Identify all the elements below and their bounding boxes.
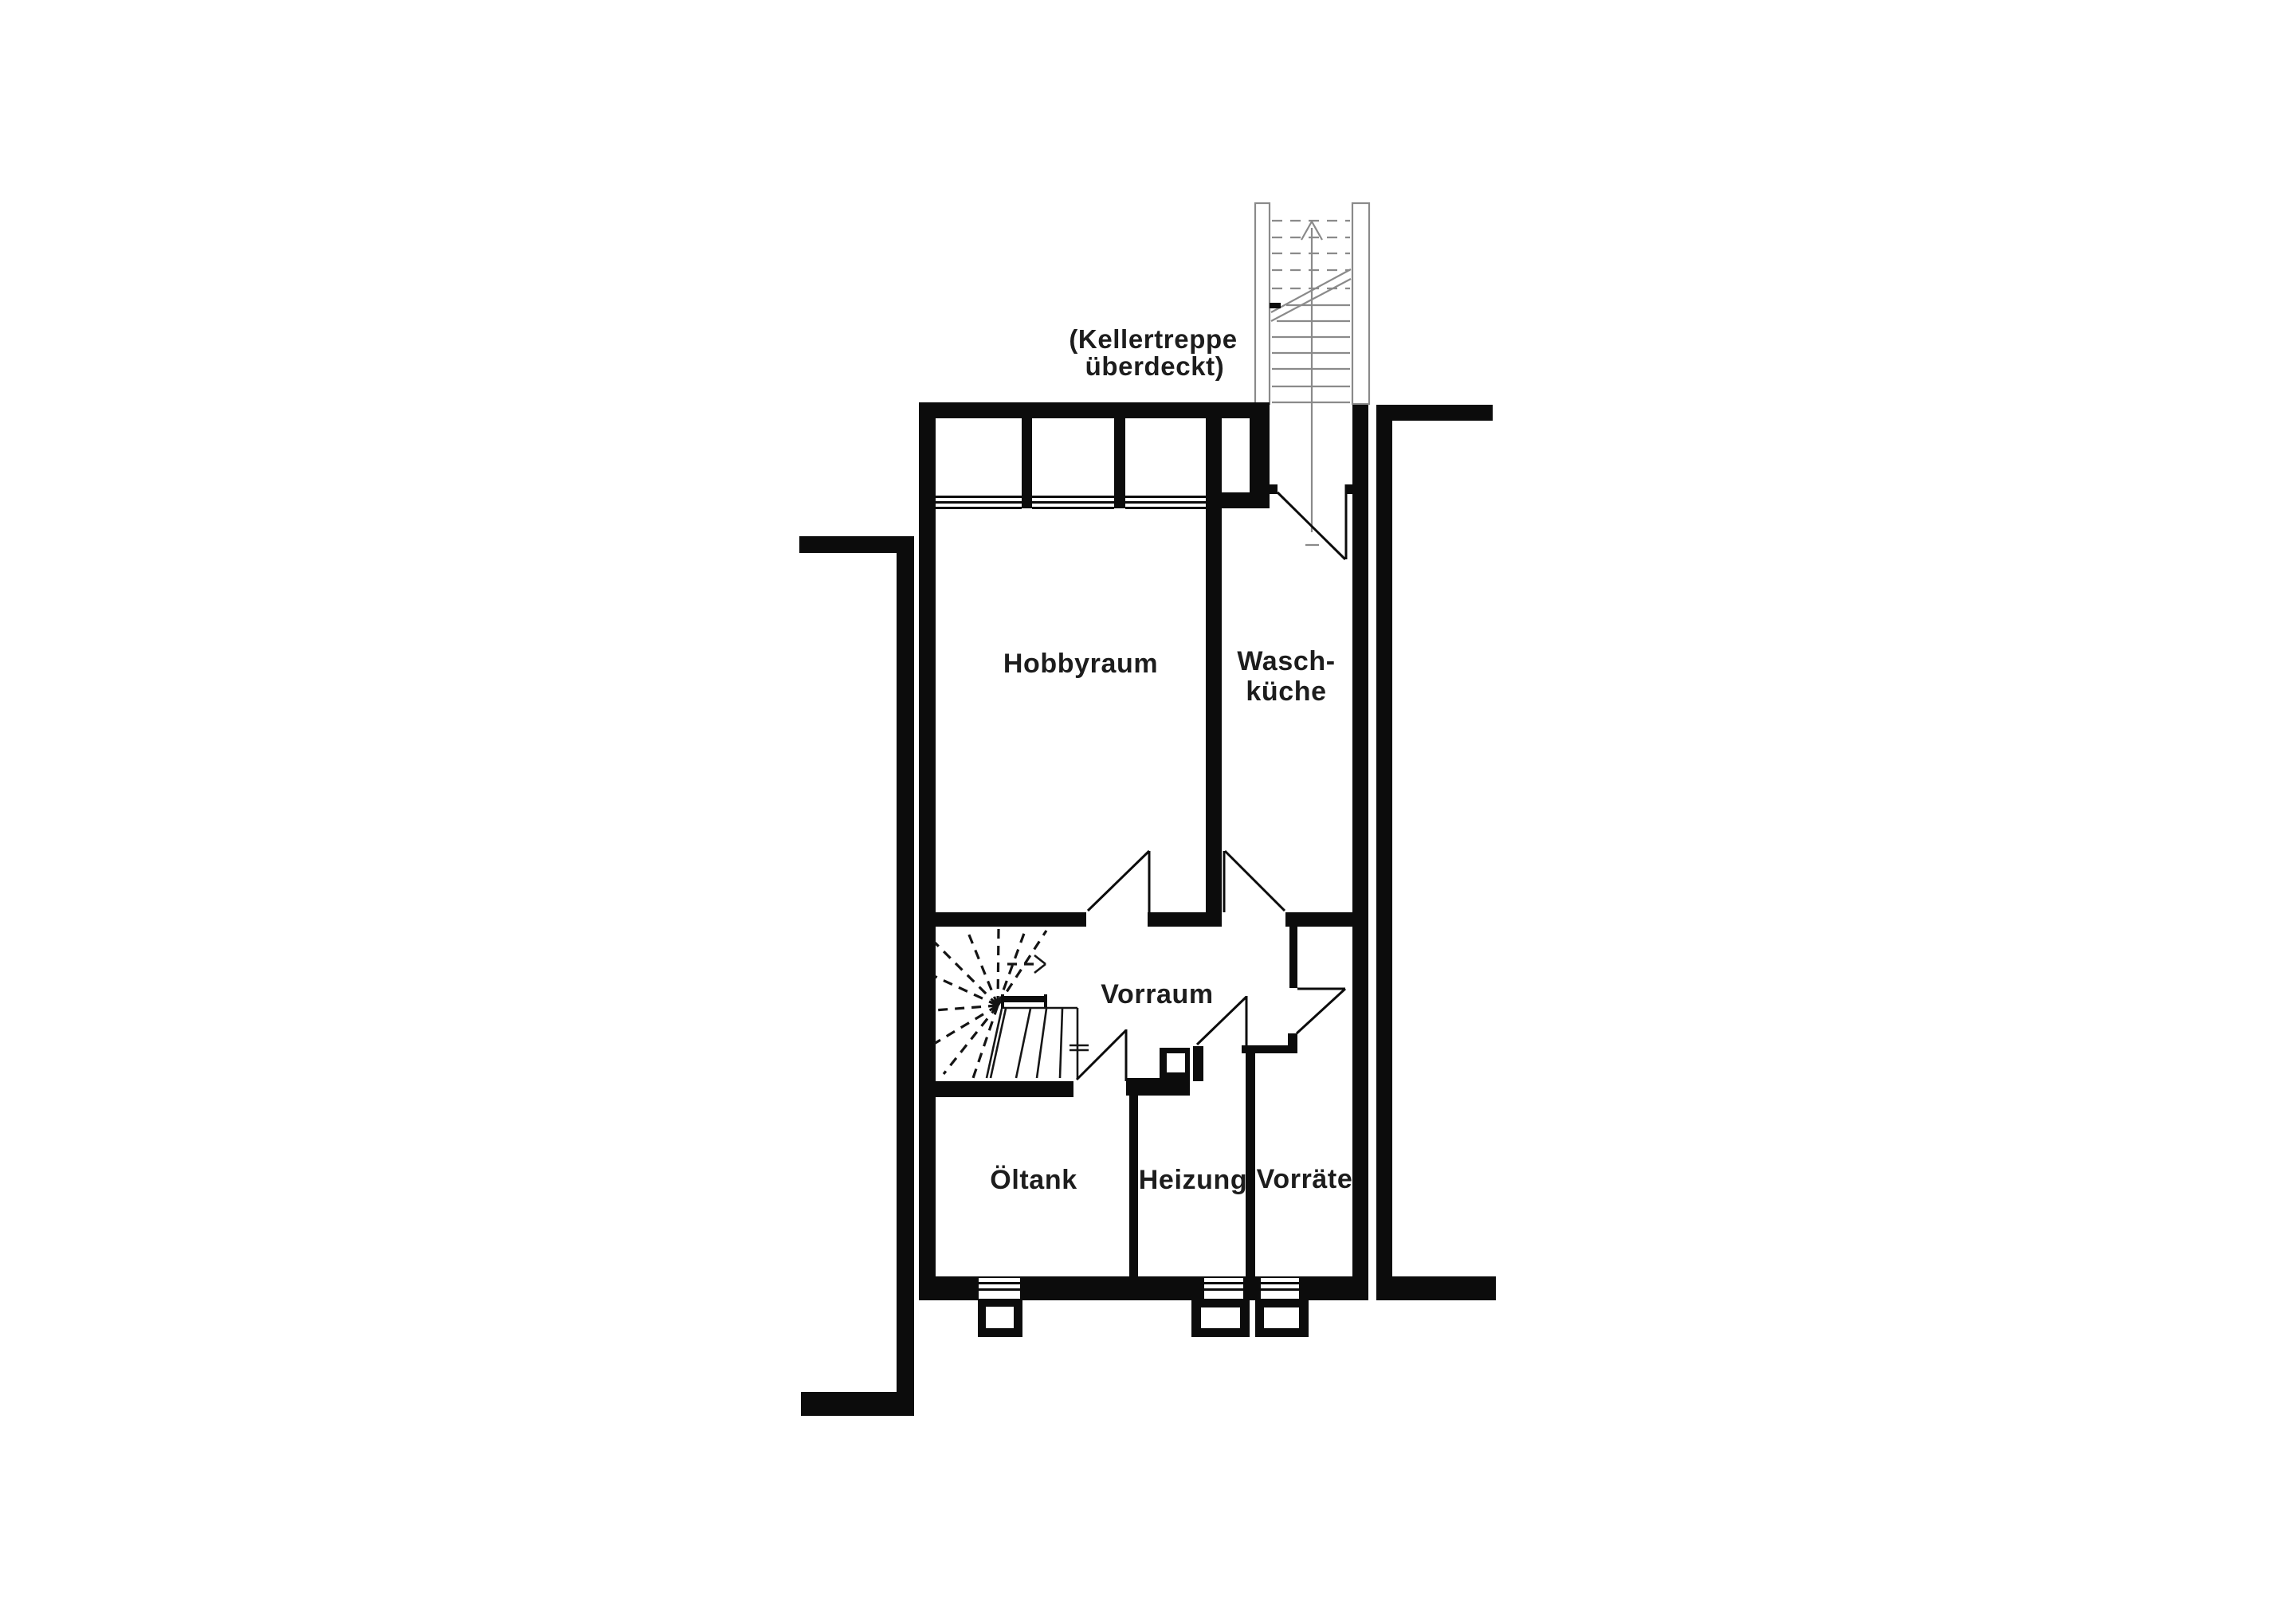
staircase-annotation: (Kellertreppe überdeckt) xyxy=(1069,324,1237,381)
wall-stub-top-left xyxy=(799,536,897,553)
stair-shaft-wall-left xyxy=(1255,203,1270,404)
stair-up-arrow xyxy=(1301,221,1322,545)
wall-alcove-left xyxy=(1289,927,1297,988)
door-vorraum-to-vorraete xyxy=(1297,989,1345,1033)
stair-shaft-wall-right xyxy=(1352,203,1369,404)
basement-floor-plan: (Kellertreppe überdeckt) xyxy=(0,0,2296,1623)
wall-chimney-band xyxy=(1126,1078,1190,1096)
window-hobbyraum-2 xyxy=(1032,496,1114,509)
window-pier-2 xyxy=(1114,418,1125,508)
label-vorraum: Vorraum xyxy=(1101,979,1214,1009)
walls xyxy=(799,402,1496,1416)
wall-stub-bottom-left xyxy=(801,1392,914,1416)
wall-divider-oeltank-heizung xyxy=(1129,1096,1138,1276)
label-oeltank: Öltank xyxy=(990,1165,1077,1195)
top-windows xyxy=(936,496,1206,509)
floor-plan-page: (Kellertreppe überdeckt) xyxy=(0,0,2296,1623)
wall-stair-bottom xyxy=(932,1081,1073,1097)
wall-hobbyraum-bottom-left xyxy=(919,912,1086,927)
winder-newel-bar xyxy=(1001,994,1047,1009)
annotation-line-1: (Kellertreppe xyxy=(1069,324,1237,354)
label-waschkueche-line2: küche xyxy=(1246,676,1326,707)
label-waschkueche-line1: Wasch- xyxy=(1237,646,1335,676)
wall-right-outer xyxy=(1376,405,1392,1276)
wall-left xyxy=(919,402,936,1300)
chimney-flue-hole xyxy=(1167,1053,1185,1072)
wall-right-inner xyxy=(1352,405,1368,1300)
winder-up-arrow xyxy=(1007,955,1046,973)
door-jamb-heizung xyxy=(1193,1046,1203,1081)
label-heizung: Heizung xyxy=(1139,1165,1247,1195)
door-waschkueche-to-vorraum xyxy=(1224,851,1285,912)
label-hobbyraum: Hobbyraum xyxy=(1003,649,1158,679)
window-pier-1 xyxy=(1022,418,1032,508)
door-jamb-stair-left xyxy=(1270,484,1278,494)
wall-stub-top-right xyxy=(1376,405,1493,421)
window-hobbyraum-3 xyxy=(1125,496,1206,509)
annotation-line-2: überdeckt) xyxy=(1085,351,1225,381)
wall-top xyxy=(919,402,1270,418)
window-oeltank xyxy=(978,1278,1022,1337)
wall-sill-bar xyxy=(1219,492,1270,508)
label-vorraete: Vorräte xyxy=(1257,1164,1353,1194)
door-hobbyraum-to-vorraum xyxy=(1088,851,1149,912)
winder-treads xyxy=(987,1008,1089,1078)
wall-waschkueche-bottom xyxy=(1285,912,1357,927)
wall-stub-bottom-right xyxy=(1376,1276,1496,1300)
wall-vorraete-top xyxy=(1242,1045,1297,1053)
wall-neighbor-left xyxy=(897,536,914,1416)
stair-break-tick xyxy=(1270,303,1281,308)
window-hobbyraum-1 xyxy=(936,496,1022,509)
winder-staircase xyxy=(934,929,1089,1080)
door-vorraum-to-oeltank xyxy=(1077,1029,1126,1081)
wall-hobbyraum-bottom-right xyxy=(1148,912,1222,927)
